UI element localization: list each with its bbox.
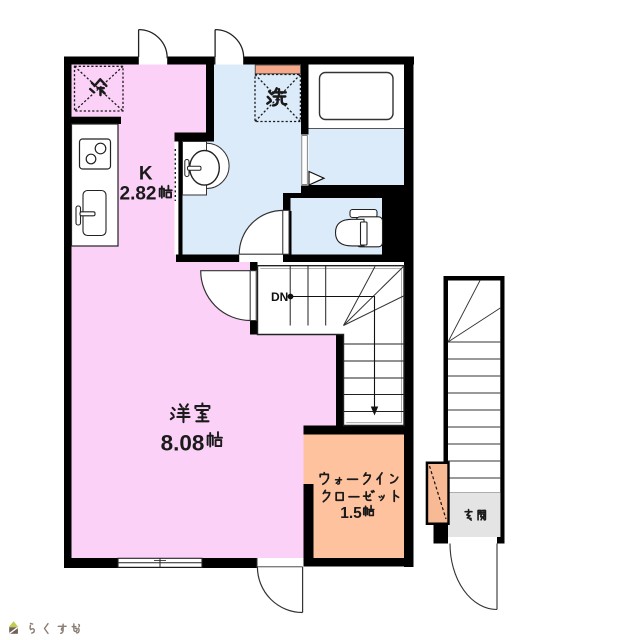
svg-text:DN: DN (271, 290, 288, 304)
svg-text:1.5: 1.5 (340, 505, 362, 522)
svg-text:K: K (139, 164, 153, 185)
svg-text:2.82: 2.82 (120, 184, 157, 205)
svg-text:8.08: 8.08 (161, 431, 205, 456)
